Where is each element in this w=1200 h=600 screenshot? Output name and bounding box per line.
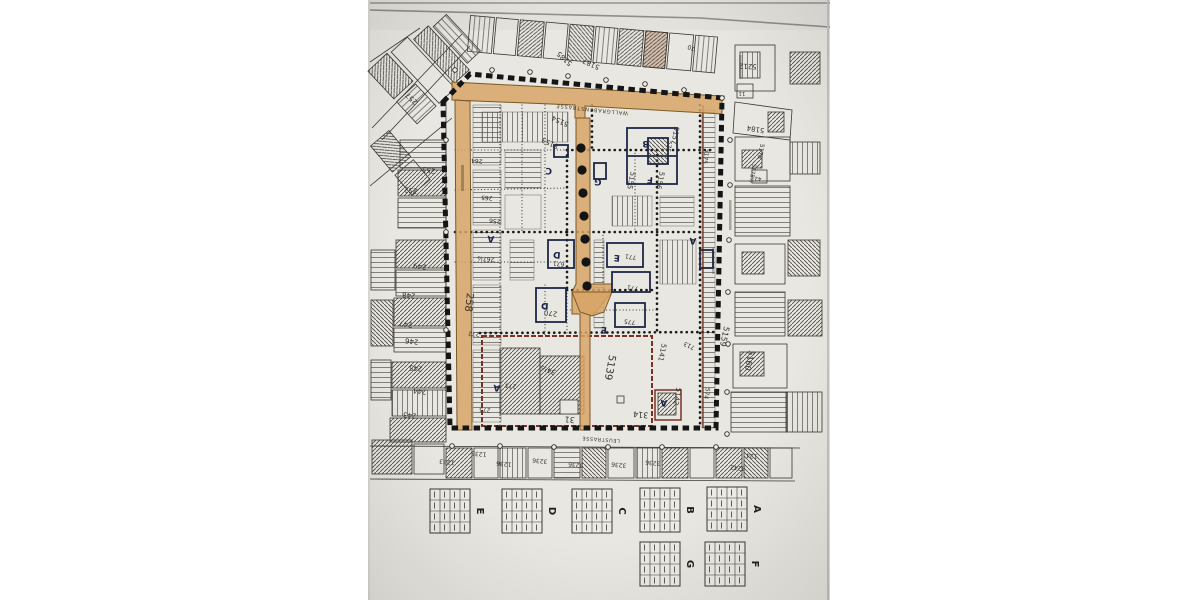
photo-of-cadastral-plan: 5185518770521211518451785178½42257253252… (0, 0, 1200, 600)
photo-vignette (368, 0, 830, 600)
cadastral-map-svg: 5185518770521211518451785178½42257253252… (0, 0, 1200, 600)
